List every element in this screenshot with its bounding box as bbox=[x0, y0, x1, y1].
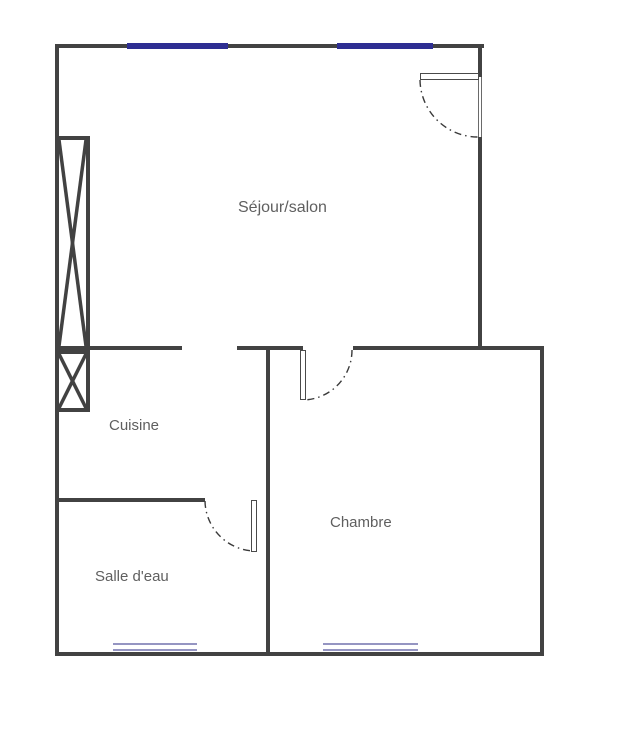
duct-shaft-small-icon bbox=[55, 350, 90, 412]
salle-deau-door-arc bbox=[205, 501, 253, 551]
wall-bottom bbox=[55, 652, 544, 656]
duct-shaft-small-cross bbox=[59, 354, 86, 408]
wall-cuisine-salle bbox=[55, 498, 205, 502]
wall-chambre-top-left bbox=[237, 346, 303, 350]
room-label-chambre: Chambre bbox=[330, 514, 392, 531]
entrance-door-jamb bbox=[478, 77, 482, 137]
wall-inner-vertical bbox=[266, 346, 270, 656]
chambre-door-leaf bbox=[300, 350, 306, 400]
room-label-sejour: Séjour/salon bbox=[238, 199, 327, 217]
wall-chambre-right bbox=[540, 346, 544, 656]
room-label-cuisine: Cuisine bbox=[109, 417, 159, 434]
salle-deau-door-leaf bbox=[251, 500, 257, 552]
wall-chambre-top-right bbox=[353, 346, 544, 350]
chambre-door-arc bbox=[304, 350, 352, 400]
door-arcs bbox=[0, 0, 628, 747]
wall-sejour-right-lower bbox=[478, 137, 482, 350]
entrance-door-arc bbox=[420, 80, 478, 137]
entrance-door-leaf bbox=[420, 73, 479, 80]
duct-shaft-tall-cross bbox=[59, 140, 86, 346]
window-salle-deau-icon bbox=[113, 643, 197, 651]
room-label-salle-deau: Salle d'eau bbox=[95, 568, 169, 585]
window-sejour-right-icon bbox=[337, 43, 433, 49]
floor-plan: Séjour/salon Cuisine Salle d'eau Chambre bbox=[0, 0, 628, 747]
window-sejour-left-icon bbox=[127, 43, 228, 49]
window-chambre-icon bbox=[323, 643, 418, 651]
duct-shaft-tall-icon bbox=[55, 136, 90, 350]
